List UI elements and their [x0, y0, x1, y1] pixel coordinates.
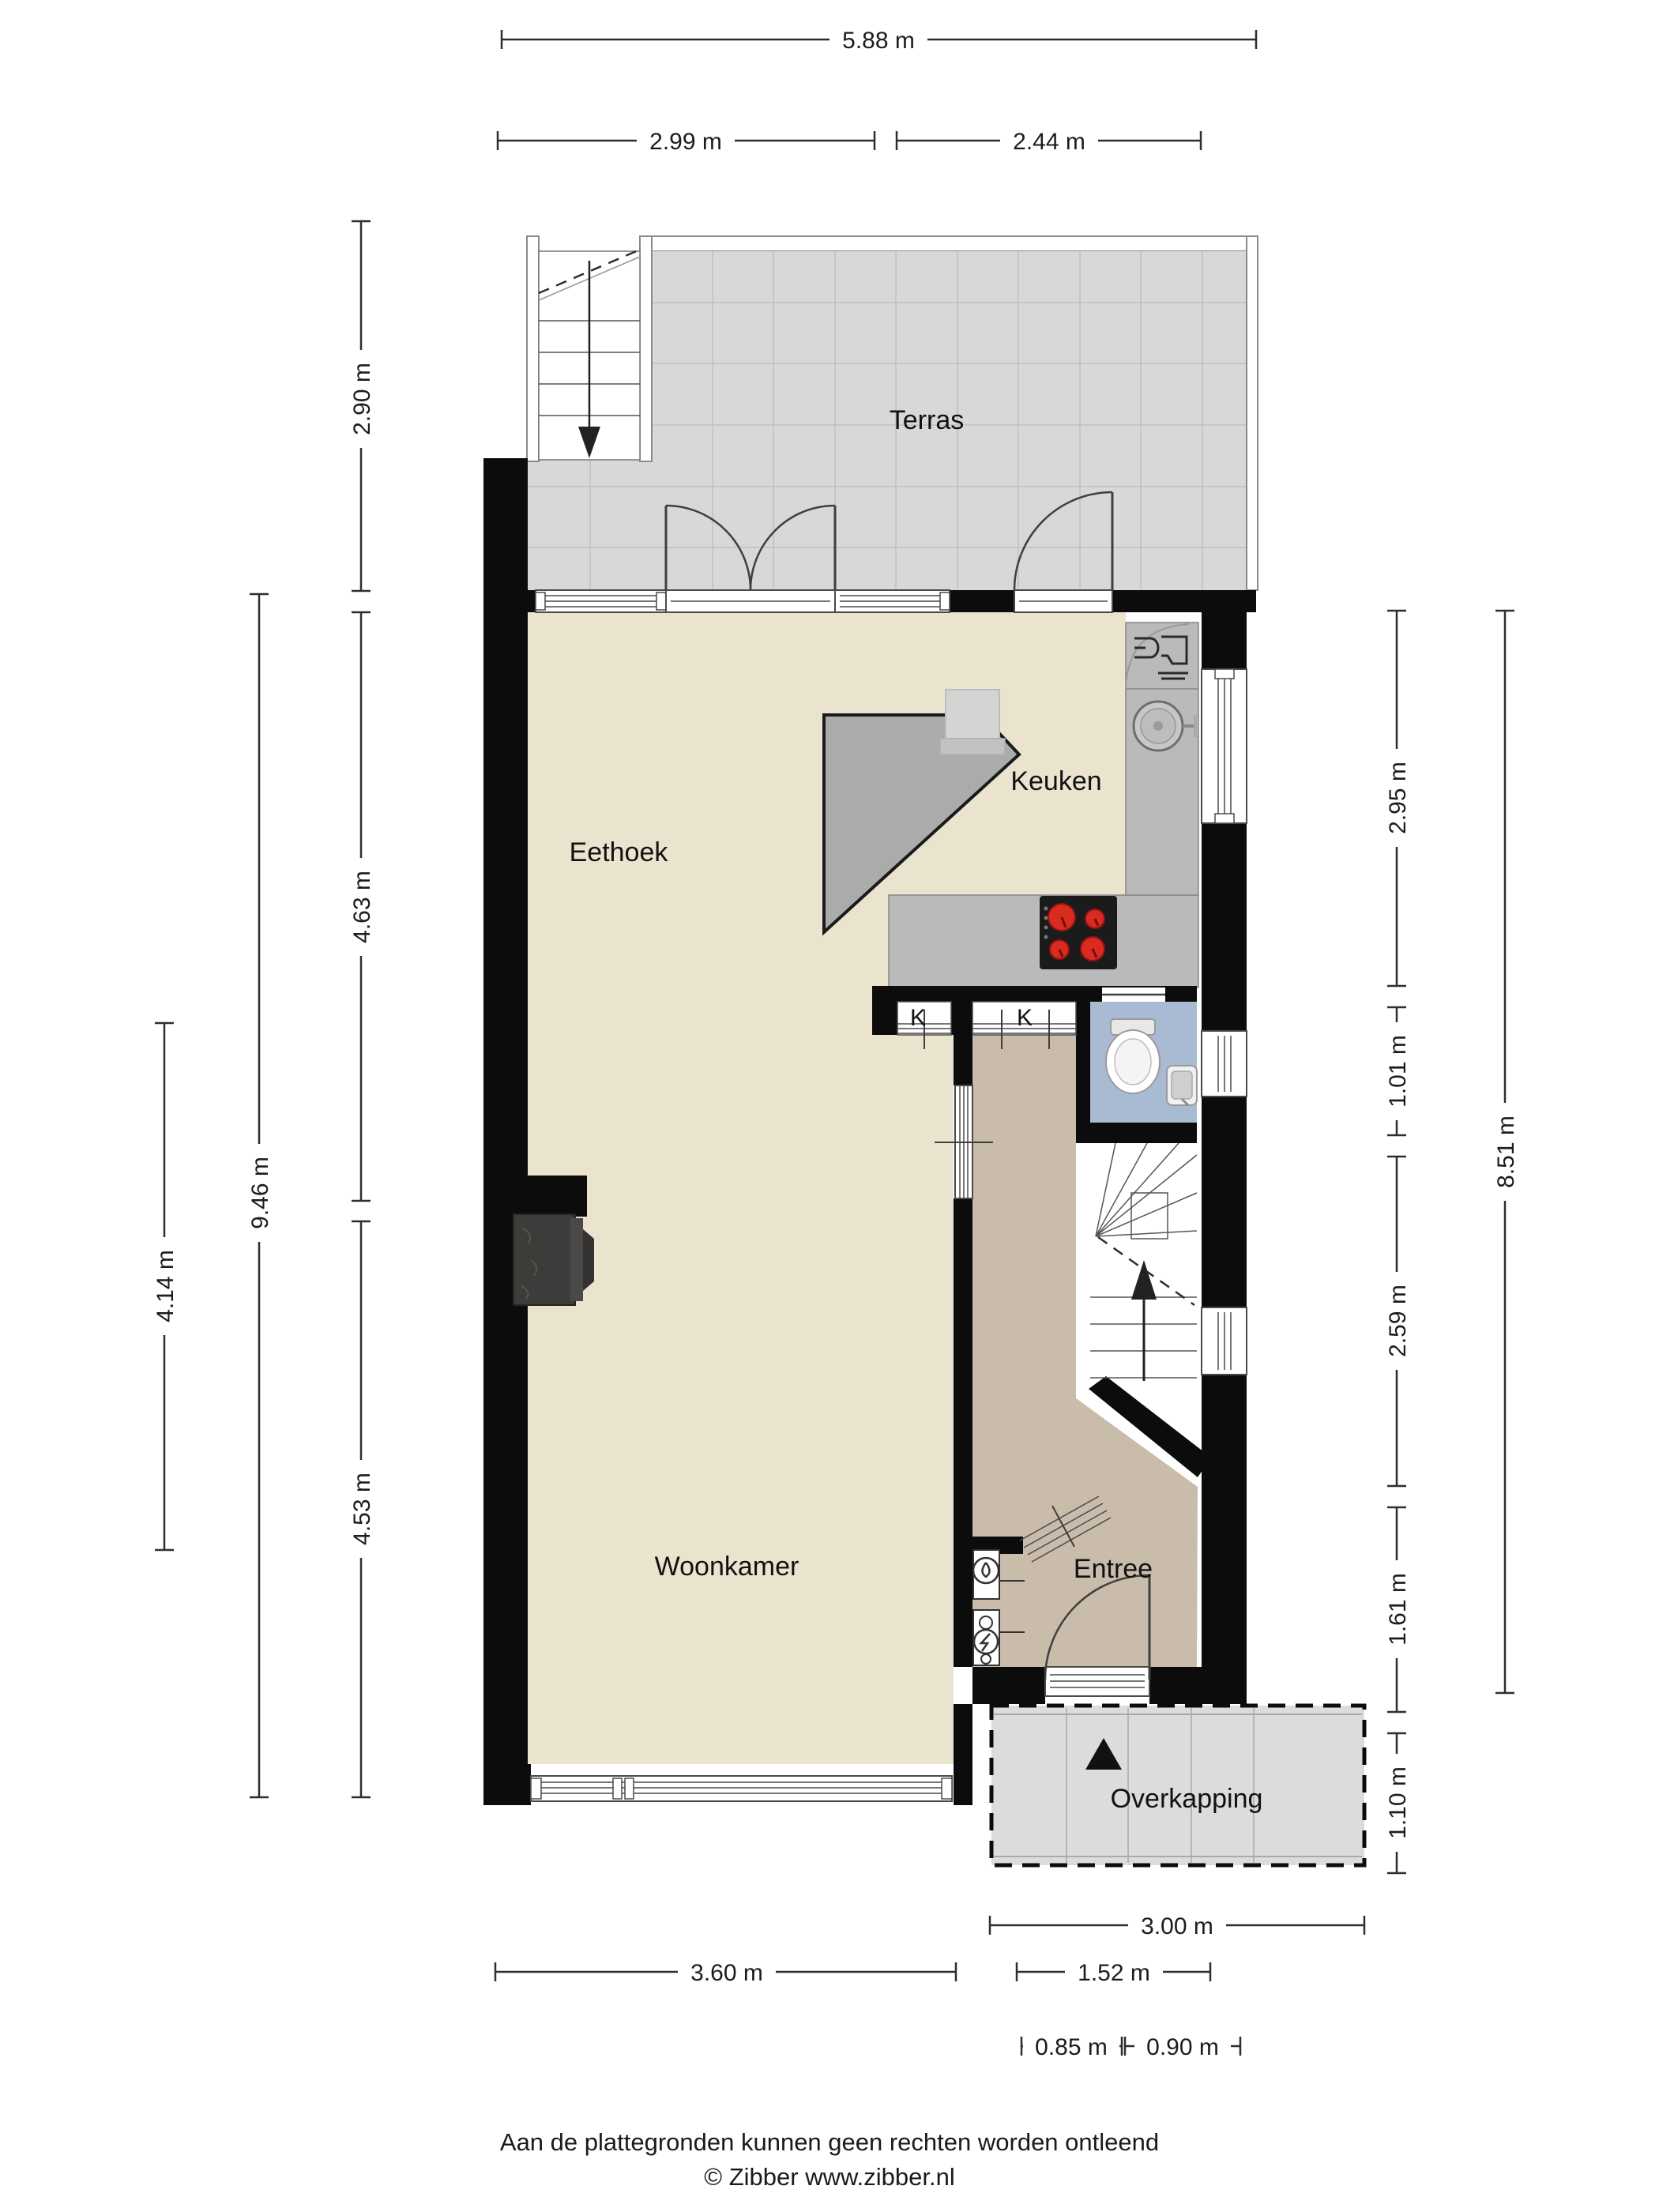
- left-wall: [483, 458, 528, 1805]
- hall-left-wall-upper: [954, 1033, 972, 1085]
- svg-text:4.14 m: 4.14 m: [152, 1250, 179, 1322]
- svg-text:8.51 m: 8.51 m: [1493, 1115, 1519, 1188]
- svg-text:3.00 m: 3.00 m: [1141, 1913, 1213, 1939]
- dim-woonkamer-width: 3.60 m: [495, 1957, 956, 1987]
- dim-woonkamer-depth: 4.53 m: [346, 1221, 376, 1797]
- svg-text:2.95 m: 2.95 m: [1385, 762, 1411, 834]
- floorplan: Terras Eethoek Keuken Woonkamer Entree O…: [0, 0, 1659, 2212]
- eethoek-label: Eethoek: [570, 837, 669, 867]
- svg-text:0.85 m: 0.85 m: [1035, 2034, 1108, 2060]
- svg-text:2.59 m: 2.59 m: [1385, 1285, 1411, 1357]
- chimney-breast: [528, 1176, 587, 1217]
- cooktop-icon: [1040, 896, 1117, 969]
- svg-text:5.88 m: 5.88 m: [842, 28, 915, 54]
- svg-text:2.44 m: 2.44 m: [1013, 129, 1085, 155]
- svg-text:1.10 m: 1.10 m: [1385, 1766, 1411, 1839]
- toilet-icon: [1106, 1019, 1160, 1093]
- dim-width-total: 5.88 m: [502, 24, 1256, 55]
- keuken-label: Keuken: [1010, 766, 1101, 796]
- dim-width-left: 2.99 m: [498, 126, 875, 156]
- overkapping-label: Overkapping: [1111, 1784, 1263, 1814]
- window-top-mid: [835, 590, 950, 612]
- stairs-hall-wall: [1076, 1002, 1090, 1143]
- footer: Aan de plattegronden kunnen geen rechten…: [500, 2128, 1159, 2191]
- toilet-door: [1102, 987, 1165, 1002]
- footer-copyright: © Zibber www.zibber.nl: [704, 2163, 954, 2191]
- window-stairs-right: [1202, 1307, 1247, 1375]
- terras-stairs: [527, 236, 652, 461]
- footer-disclaimer: Aan de plattegronden kunnen geen rechten…: [500, 2128, 1159, 2156]
- dim-right-total: 8.51 m: [1490, 611, 1520, 1693]
- hall-left-wall-lower: [954, 1198, 972, 1667]
- dim-terras-depth: 2.90 m: [346, 221, 376, 591]
- dim-stairs-depth: 2.59 m: [1382, 1157, 1412, 1486]
- dim-front-door-side: 0.90 m: [1125, 2031, 1240, 2061]
- dim-woonkamer-mid: 4.14 m: [149, 1023, 179, 1550]
- svg-text:4.63 m: 4.63 m: [349, 871, 375, 943]
- dim-entree-width: 1.52 m: [1017, 1957, 1210, 1987]
- window-woonkamer-bottom: [531, 1776, 952, 1801]
- svg-text:2.90 m: 2.90 m: [349, 363, 375, 435]
- toilet-sink-icon: [1167, 1066, 1197, 1105]
- fireplace: [513, 1214, 594, 1305]
- dim-interior-depth: 9.46 m: [244, 594, 274, 1797]
- dim-front-door-width: 0.85 m: [1021, 2031, 1122, 2061]
- woonkamer-label: Woonkamer: [655, 1552, 799, 1582]
- entree-label: Entree: [1074, 1554, 1153, 1584]
- svg-text:3.60 m: 3.60 m: [690, 1960, 763, 1986]
- dim-width-right: 2.44 m: [897, 126, 1201, 156]
- svg-text:9.46 m: 9.46 m: [247, 1157, 273, 1229]
- closet-left-label: K: [910, 1005, 926, 1031]
- dim-entree-depth: 1.61 m: [1382, 1507, 1412, 1712]
- svg-text:1.01 m: 1.01 m: [1385, 1035, 1411, 1108]
- dim-toilet-depth: 1.01 m: [1382, 1007, 1412, 1135]
- window-kitchen-right: [1202, 669, 1247, 823]
- window-top-left: [536, 590, 666, 612]
- svg-text:1.61 m: 1.61 m: [1385, 1573, 1411, 1646]
- window-toilet-right: [1202, 1031, 1247, 1097]
- dim-overkapping-width: 3.00 m: [990, 1910, 1364, 1940]
- dim-overkapping-depth: 1.10 m: [1382, 1733, 1412, 1873]
- toilet-bottom-wall: [1090, 1123, 1197, 1143]
- svg-text:0.90 m: 0.90 m: [1146, 2034, 1219, 2060]
- terras-top-railing: [640, 236, 1256, 251]
- terras-right-railing: [1247, 236, 1258, 590]
- svg-text:1.52 m: 1.52 m: [1078, 1960, 1150, 1986]
- dim-keuken-depth: 2.95 m: [1382, 611, 1412, 986]
- svg-text:4.53 m: 4.53 m: [349, 1473, 375, 1545]
- svg-text:2.99 m: 2.99 m: [649, 129, 722, 155]
- woonkamer-entree-step-wall: [954, 1704, 972, 1805]
- dim-eethoek-depth: 4.63 m: [346, 612, 376, 1201]
- closet-right-label: K: [1017, 1005, 1033, 1031]
- terras-label: Terras: [890, 405, 964, 435]
